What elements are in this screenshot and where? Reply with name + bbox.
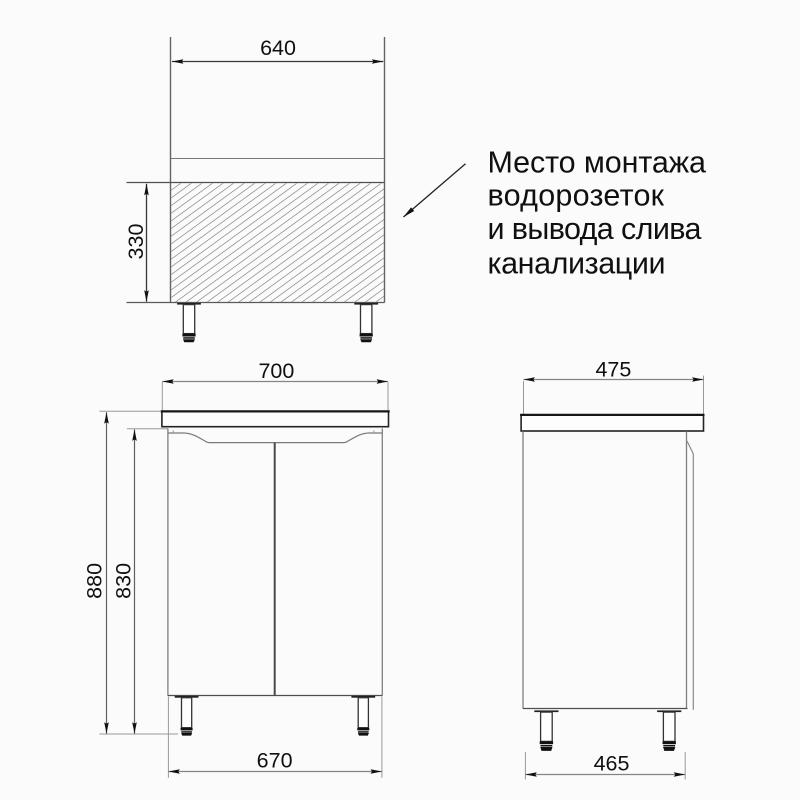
svg-text:водорозеток: водорозеток xyxy=(488,179,665,213)
svg-text:Место монтажа: Место монтажа xyxy=(488,145,707,179)
svg-text:330: 330 xyxy=(124,224,148,260)
svg-text:700: 700 xyxy=(258,359,294,383)
svg-text:475: 475 xyxy=(595,358,631,382)
svg-text:670: 670 xyxy=(257,749,293,773)
svg-text:880: 880 xyxy=(82,563,106,599)
svg-text:канализации: канализации xyxy=(488,246,666,280)
svg-text:830: 830 xyxy=(112,563,136,599)
svg-text:и вывода слива: и вывода слива xyxy=(488,212,702,246)
svg-text:640: 640 xyxy=(260,36,296,60)
svg-text:465: 465 xyxy=(594,751,630,775)
